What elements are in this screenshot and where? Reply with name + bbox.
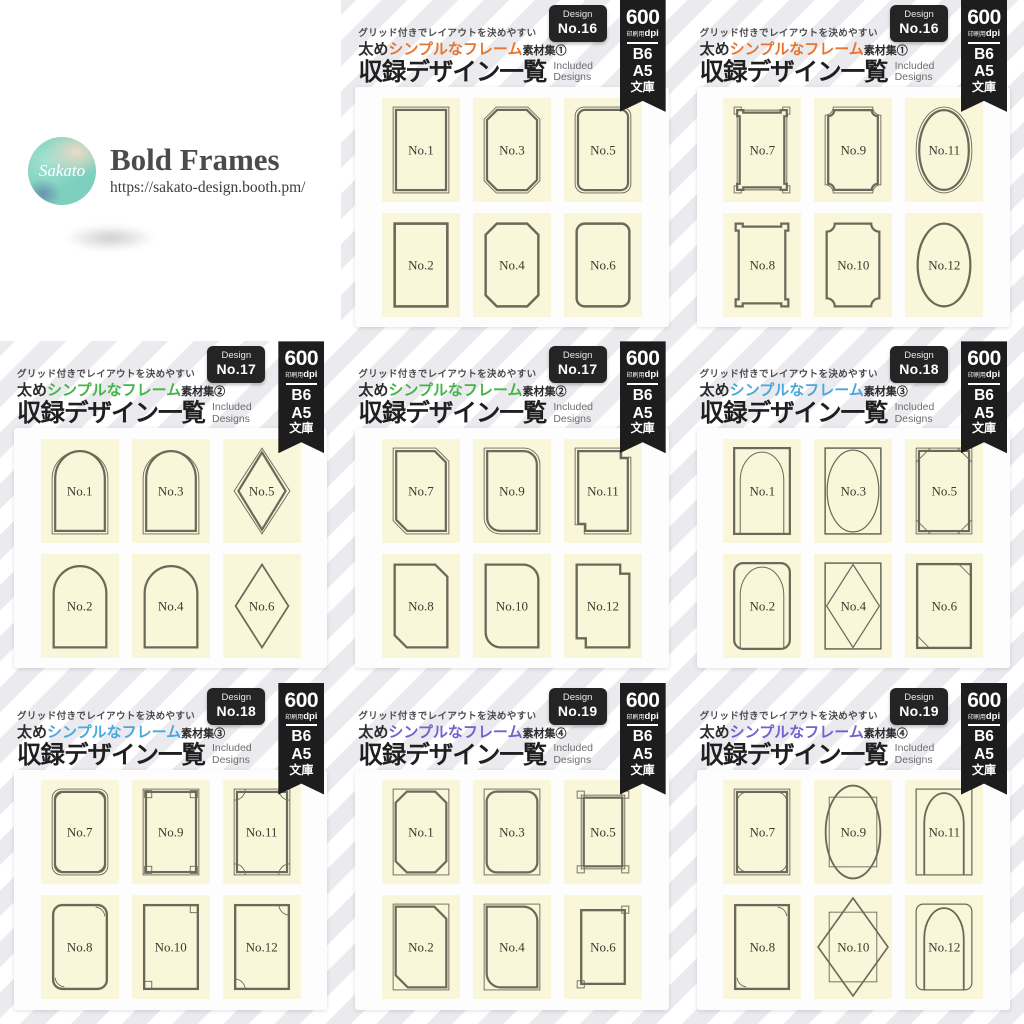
frame-label: No.7 — [65, 826, 95, 839]
design-panel: グリッド付きでレイアウトを決めやすい 太めシンプルなフレーム素材集④ 収録デザイ… — [683, 683, 1024, 1024]
design-number-badge: Design No.17 — [549, 346, 607, 383]
ribbon-dpi-value: 600 — [620, 690, 666, 711]
series-prefix: 太め — [700, 724, 730, 741]
badge-label: Design — [890, 692, 948, 703]
frame-cell: No.2 — [723, 554, 801, 658]
frame-cell: No.3 — [473, 98, 551, 202]
spec-ribbon: 600 印刷用dpi B6 A5 文庫 — [961, 0, 1007, 112]
heading-row: 収録デザイン一覧 IncludedDesigns — [700, 743, 950, 769]
panel-heading: 収録デザイン一覧 — [700, 743, 888, 769]
frame-label: No.4 — [839, 599, 869, 612]
frame-label: No.9 — [497, 484, 527, 497]
series-prefix: 太め — [17, 724, 47, 741]
series-accent: シンプルなフレーム — [730, 724, 864, 741]
design-number-badge: Design No.19 — [549, 688, 607, 725]
ribbon-size-a5: A5 — [278, 746, 324, 764]
frame-cell: No.1 — [382, 780, 460, 884]
ribbon-size-b6: B6 — [961, 46, 1007, 64]
frame-cell: No.7 — [723, 98, 801, 202]
design-panel: グリッド付きでレイアウトを決めやすい 太めシンプルなフレーム素材集③ 収録デザイ… — [0, 683, 341, 1024]
frame-label: No.10 — [835, 258, 871, 271]
frame-label: No.2 — [748, 599, 778, 612]
design-number-badge: Design No.17 — [207, 346, 265, 383]
frames-card: No.1No.3No.5No.2No.4No.6 — [14, 428, 327, 668]
series-prefix: 太め — [700, 382, 730, 399]
frame-cell: No.9 — [473, 439, 551, 543]
frame-label: No.9 — [839, 143, 869, 156]
frame-cell: No.11 — [564, 439, 642, 543]
series-title: 太めシンプルなフレーム素材集② — [17, 383, 267, 399]
series-title: 太めシンプルなフレーム素材集③ — [17, 725, 267, 741]
heading-row: 収録デザイン一覧 IncludedDesigns — [358, 743, 608, 769]
spec-ribbon: 600 印刷用dpi B6 A5 文庫 — [961, 683, 1007, 795]
frame-cell: No.8 — [723, 895, 801, 999]
series-prefix: 太め — [17, 382, 47, 399]
badge-label: Design — [549, 692, 607, 703]
badge-number: No.17 — [549, 361, 607, 377]
series-suffix: 素材集② — [522, 386, 566, 398]
frame-cell: No.2 — [382, 895, 460, 999]
badge-number: No.18 — [890, 361, 948, 377]
frames-card: No.7No.9No.11No.8No.10No.12 — [697, 87, 1010, 327]
spec-ribbon: 600 印刷用dpi B6 A5 文庫 — [620, 0, 666, 112]
frame-label: No.11 — [585, 484, 621, 497]
frame-label: No.6 — [930, 599, 960, 612]
ribbon-size-b6: B6 — [278, 728, 324, 746]
ribbon-dpi-unit: 印刷用dpi — [961, 370, 1007, 380]
frame-label: No.5 — [588, 826, 618, 839]
frame-cell: No.1 — [382, 98, 460, 202]
frame-cell: No.2 — [41, 554, 119, 658]
series-accent: シンプルなフレーム — [388, 41, 522, 58]
frame-label: No.6 — [588, 258, 618, 271]
frame-cell: No.10 — [473, 554, 551, 658]
ribbon-size-bunko: 文庫 — [278, 764, 324, 778]
panel-heading-sub: IncludedDesigns — [895, 743, 935, 768]
ribbon-divider — [968, 724, 999, 726]
ribbon-dpi-value: 600 — [620, 348, 666, 369]
frame-cell: No.12 — [905, 213, 983, 317]
ribbon-divider — [968, 42, 999, 44]
brand-block: Sakato Bold Frames https://sakato-design… — [0, 0, 341, 341]
ribbon-dpi-unit: 印刷用dpi — [278, 370, 324, 380]
heading-row: 収録デザイン一覧 IncludedDesigns — [700, 60, 950, 86]
series-accent: シンプルなフレーム — [388, 724, 522, 741]
ribbon-size-b6: B6 — [961, 728, 1007, 746]
ribbon-dpi-value: 600 — [278, 690, 324, 711]
ribbon-size-a5: A5 — [961, 405, 1007, 423]
badge-number: No.19 — [890, 703, 948, 719]
frame-cell: No.7 — [41, 780, 119, 884]
frame-cell: No.6 — [905, 554, 983, 658]
frame-cell: No.4 — [132, 554, 210, 658]
ribbon-size-bunko: 文庫 — [620, 764, 666, 778]
series-accent: シンプルなフレーム — [730, 382, 864, 399]
ribbon-size-b6: B6 — [620, 387, 666, 405]
ribbon-dpi-unit: 印刷用dpi — [278, 712, 324, 722]
badge-label: Design — [207, 350, 265, 361]
ribbon-dpi-unit: 印刷用dpi — [620, 29, 666, 39]
frame-label: No.5 — [588, 143, 618, 156]
series-suffix: 素材集④ — [522, 728, 566, 740]
series-suffix: 素材集② — [181, 386, 225, 398]
ribbon-size-b6: B6 — [278, 387, 324, 405]
frame-label: No.3 — [497, 143, 527, 156]
ribbon-divider — [627, 724, 658, 726]
frame-cell: No.9 — [814, 780, 892, 884]
ribbon-size-bunko: 文庫 — [620, 81, 666, 95]
series-suffix: 素材集③ — [864, 386, 908, 398]
panel-heading-sub: IncludedDesigns — [212, 743, 252, 768]
panel-heading-sub: IncludedDesigns — [553, 61, 593, 86]
frame-label: No.1 — [65, 484, 95, 497]
frame-cell: No.8 — [723, 213, 801, 317]
design-panel: グリッド付きでレイアウトを決めやすい 太めシンプルなフレーム素材集④ 収録デザイ… — [341, 683, 682, 1024]
panel-heading: 収録デザイン一覧 — [358, 743, 546, 769]
panel-heading: 収録デザイン一覧 — [358, 60, 546, 86]
design-panel: グリッド付きでレイアウトを決めやすい 太めシンプルなフレーム素材集① 収録デザイ… — [683, 0, 1024, 341]
design-panel: グリッド付きでレイアウトを決めやすい 太めシンプルなフレーム素材集② 収録デザイ… — [0, 341, 341, 682]
frame-label: No.12 — [926, 941, 962, 954]
frames-card: No.1No.3No.5No.2No.4No.6 — [355, 770, 668, 1010]
frame-cell: No.1 — [723, 439, 801, 543]
ribbon-size-a5: A5 — [278, 405, 324, 423]
frame-cell: No.4 — [473, 895, 551, 999]
heading-row: 収録デザイン一覧 IncludedDesigns — [17, 401, 267, 427]
frame-label: No.2 — [65, 599, 95, 612]
frame-label: No.10 — [835, 941, 871, 954]
spec-ribbon: 600 印刷用dpi B6 A5 文庫 — [620, 341, 666, 453]
frame-cell: No.10 — [132, 895, 210, 999]
frame-label: No.4 — [497, 258, 527, 271]
panel-heading-sub: IncludedDesigns — [553, 402, 593, 427]
series-suffix: 素材集③ — [181, 728, 225, 740]
frame-label: No.7 — [748, 826, 778, 839]
heading-row: 収録デザイン一覧 IncludedDesigns — [17, 743, 267, 769]
frame-label: No.11 — [244, 826, 280, 839]
series-title: 太めシンプルなフレーム素材集① — [358, 42, 608, 58]
frame-label: No.9 — [156, 826, 186, 839]
ribbon-dpi-unit: 印刷用dpi — [620, 370, 666, 380]
ribbon-size-b6: B6 — [620, 46, 666, 64]
frame-cell: No.3 — [473, 780, 551, 884]
frame-cell: No.5 — [564, 780, 642, 884]
series-title: 太めシンプルなフレーム素材集④ — [700, 725, 950, 741]
ribbon-divider — [286, 383, 317, 385]
badge-label: Design — [207, 692, 265, 703]
frame-cell: No.12 — [564, 554, 642, 658]
badge-label: Design — [890, 350, 948, 361]
ribbon-size-bunko: 文庫 — [961, 422, 1007, 436]
badge-number: No.16 — [890, 20, 948, 36]
frame-label: No.3 — [839, 484, 869, 497]
frame-label: No.1 — [748, 484, 778, 497]
series-suffix: 素材集① — [864, 45, 908, 57]
brand-title: Bold Frames — [110, 144, 305, 177]
frame-label: No.1 — [406, 143, 436, 156]
frame-label: No.2 — [406, 941, 436, 954]
ribbon-divider — [627, 383, 658, 385]
frames-card: No.1No.3No.5No.2No.4No.6 — [355, 87, 668, 327]
brand-url: https://sakato-design.booth.pm/ — [110, 179, 305, 197]
frame-label: No.2 — [406, 258, 436, 271]
panel-heading: 収録デザイン一覧 — [17, 401, 205, 427]
heading-row: 収録デザイン一覧 IncludedDesigns — [358, 401, 608, 427]
frame-cell: No.12 — [223, 895, 301, 999]
brand-logo-text: Sakato — [39, 161, 85, 181]
ribbon-dpi-value: 600 — [961, 690, 1007, 711]
panel-heading-sub: IncludedDesigns — [553, 743, 593, 768]
frame-cell: No.10 — [814, 895, 892, 999]
ribbon-size-bunko: 文庫 — [278, 422, 324, 436]
frame-label: No.1 — [406, 826, 436, 839]
badge-label: Design — [890, 9, 948, 20]
ribbon-size-b6: B6 — [620, 728, 666, 746]
frame-cell: No.12 — [905, 895, 983, 999]
frame-label: No.3 — [156, 484, 186, 497]
design-panel: グリッド付きでレイアウトを決めやすい 太めシンプルなフレーム素材集② 収録デザイ… — [341, 341, 682, 682]
ribbon-dpi-value: 600 — [961, 7, 1007, 28]
frame-label: No.6 — [247, 599, 277, 612]
series-title: 太めシンプルなフレーム素材集④ — [358, 725, 608, 741]
frame-cell: No.2 — [382, 213, 460, 317]
spec-ribbon: 600 印刷用dpi B6 A5 文庫 — [278, 683, 324, 795]
frame-label: No.12 — [244, 941, 280, 954]
panel-heading: 収録デザイン一覧 — [17, 743, 205, 769]
frame-cell: No.7 — [723, 780, 801, 884]
badge-number: No.18 — [207, 703, 265, 719]
frame-label: No.7 — [748, 143, 778, 156]
frame-cell: No.9 — [132, 780, 210, 884]
frame-label: No.6 — [588, 941, 618, 954]
frame-label: No.4 — [156, 599, 186, 612]
frames-card: No.7No.9No.11No.8No.10No.12 — [355, 428, 668, 668]
badge-label: Design — [549, 350, 607, 361]
frame-label: No.12 — [585, 599, 621, 612]
frame-cell: No.6 — [564, 895, 642, 999]
frames-card: No.7No.9No.11No.8No.10No.12 — [697, 770, 1010, 1010]
spec-ribbon: 600 印刷用dpi B6 A5 文庫 — [961, 341, 1007, 453]
series-title: 太めシンプルなフレーム素材集② — [358, 383, 608, 399]
frame-cell: No.1 — [41, 439, 119, 543]
series-prefix: 太め — [700, 41, 730, 58]
frame-cell: No.9 — [814, 98, 892, 202]
series-accent: シンプルなフレーム — [47, 724, 181, 741]
panel-heading-sub: IncludedDesigns — [212, 402, 252, 427]
ribbon-size-a5: A5 — [620, 63, 666, 81]
frame-cell: No.7 — [382, 439, 460, 543]
frame-cell: No.4 — [814, 554, 892, 658]
ribbon-divider — [627, 42, 658, 44]
series-prefix: 太め — [358, 382, 388, 399]
frame-label: No.9 — [839, 826, 869, 839]
frame-label: No.8 — [748, 941, 778, 954]
frames-card: No.1No.3No.5No.2No.4No.6 — [697, 428, 1010, 668]
ribbon-size-a5: A5 — [961, 63, 1007, 81]
frame-cell: No.6 — [223, 554, 301, 658]
panel-heading: 収録デザイン一覧 — [358, 401, 546, 427]
frame-label: No.12 — [926, 258, 962, 271]
frame-label: No.3 — [497, 826, 527, 839]
panel-heading: 収録デザイン一覧 — [700, 60, 888, 86]
ribbon-dpi-value: 600 — [961, 348, 1007, 369]
frame-cell: No.4 — [473, 213, 551, 317]
series-prefix: 太め — [358, 724, 388, 741]
frame-cell: No.10 — [814, 213, 892, 317]
panel-heading: 収録デザイン一覧 — [700, 401, 888, 427]
ribbon-dpi-unit: 印刷用dpi — [620, 712, 666, 722]
series-accent: シンプルなフレーム — [388, 382, 522, 399]
frame-label: No.8 — [65, 941, 95, 954]
series-title: 太めシンプルなフレーム素材集① — [700, 42, 950, 58]
frame-cell: No.5 — [564, 98, 642, 202]
ribbon-dpi-value: 600 — [620, 7, 666, 28]
design-number-badge: Design No.16 — [890, 5, 948, 42]
design-panel: グリッド付きでレイアウトを決めやすい 太めシンプルなフレーム素材集① 収録デザイ… — [341, 0, 682, 341]
frame-cell: No.11 — [223, 780, 301, 884]
frame-cell: No.3 — [132, 439, 210, 543]
badge-number: No.19 — [549, 703, 607, 719]
heading-row: 収録デザイン一覧 IncludedDesigns — [700, 401, 950, 427]
ribbon-dpi-value: 600 — [278, 348, 324, 369]
promo-sheet: Sakato Bold Frames https://sakato-design… — [0, 0, 1024, 1024]
frame-label: No.11 — [927, 143, 963, 156]
frame-cell: No.11 — [905, 780, 983, 884]
design-number-badge: Design No.19 — [890, 688, 948, 725]
frame-cell: No.8 — [41, 895, 119, 999]
design-number-badge: Design No.18 — [890, 346, 948, 383]
badge-number: No.16 — [549, 20, 607, 36]
series-title: 太めシンプルなフレーム素材集③ — [700, 383, 950, 399]
frame-label: No.5 — [247, 484, 277, 497]
frame-label: No.7 — [406, 484, 436, 497]
ribbon-size-bunko: 文庫 — [961, 764, 1007, 778]
frame-label: No.10 — [153, 941, 189, 954]
badge-label: Design — [549, 9, 607, 20]
design-number-badge: Design No.16 — [549, 5, 607, 42]
frame-label: No.4 — [497, 941, 527, 954]
panel-heading-sub: IncludedDesigns — [895, 61, 935, 86]
ribbon-size-a5: A5 — [961, 746, 1007, 764]
ribbon-size-b6: B6 — [961, 387, 1007, 405]
frame-cell: No.6 — [564, 213, 642, 317]
frames-card: No.7No.9No.11No.8No.10No.12 — [14, 770, 327, 1010]
series-accent: シンプルなフレーム — [47, 382, 181, 399]
frame-cell: No.3 — [814, 439, 892, 543]
ribbon-divider — [968, 383, 999, 385]
frame-label: No.5 — [930, 484, 960, 497]
badge-number: No.17 — [207, 361, 265, 377]
heading-row: 収録デザイン一覧 IncludedDesigns — [358, 60, 608, 86]
frame-label: No.11 — [927, 826, 963, 839]
brand-logo-circle: Sakato — [28, 137, 96, 205]
series-prefix: 太め — [358, 41, 388, 58]
ribbon-size-a5: A5 — [620, 405, 666, 423]
spec-ribbon: 600 印刷用dpi B6 A5 文庫 — [620, 683, 666, 795]
frame-cell: No.11 — [905, 98, 983, 202]
logo-shadow — [64, 225, 156, 251]
frame-cell: No.8 — [382, 554, 460, 658]
frame-label: No.8 — [748, 258, 778, 271]
series-suffix: 素材集④ — [864, 728, 908, 740]
ribbon-divider — [286, 724, 317, 726]
ribbon-dpi-unit: 印刷用dpi — [961, 712, 1007, 722]
ribbon-size-a5: A5 — [620, 746, 666, 764]
spec-ribbon: 600 印刷用dpi B6 A5 文庫 — [278, 341, 324, 453]
design-panel: グリッド付きでレイアウトを決めやすい 太めシンプルなフレーム素材集③ 収録デザイ… — [683, 341, 1024, 682]
ribbon-size-bunko: 文庫 — [620, 422, 666, 436]
panel-heading-sub: IncludedDesigns — [895, 402, 935, 427]
frame-cell: No.5 — [223, 439, 301, 543]
ribbon-size-bunko: 文庫 — [961, 81, 1007, 95]
series-accent: シンプルなフレーム — [730, 41, 864, 58]
frame-cell: No.5 — [905, 439, 983, 543]
brand-text-block: Bold Frames https://sakato-design.booth.… — [110, 144, 305, 197]
design-number-badge: Design No.18 — [207, 688, 265, 725]
frame-label: No.10 — [494, 599, 530, 612]
ribbon-dpi-unit: 印刷用dpi — [961, 29, 1007, 39]
series-suffix: 素材集① — [522, 45, 566, 57]
frame-label: No.8 — [406, 599, 436, 612]
